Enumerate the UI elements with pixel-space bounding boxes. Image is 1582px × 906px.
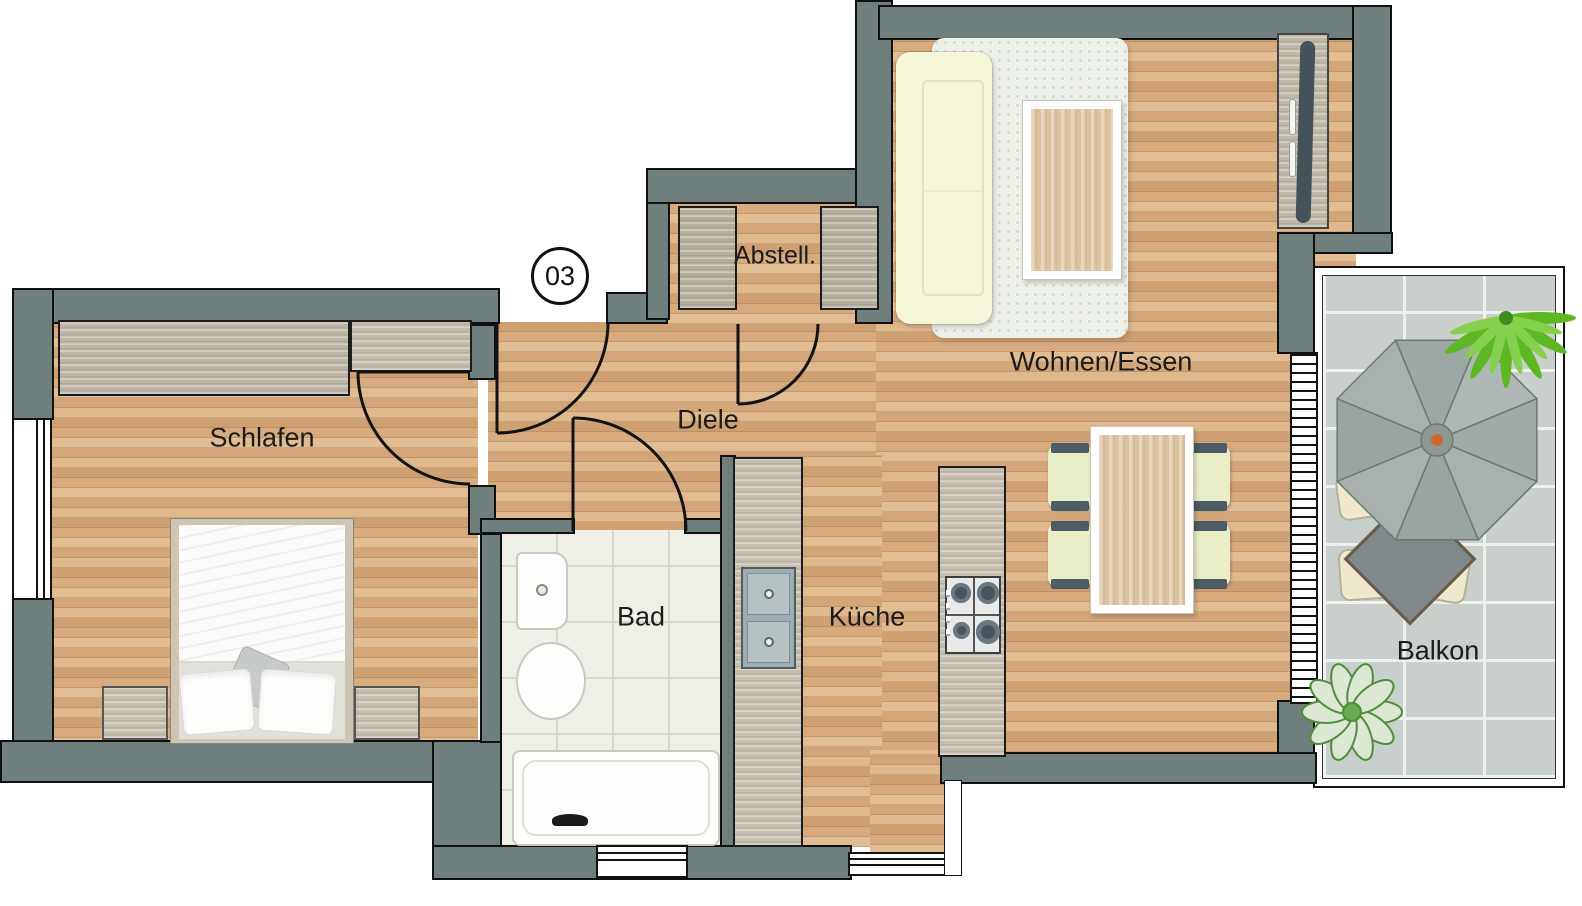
- chair-back: [1189, 443, 1227, 453]
- room-label-kueche: Küche: [829, 602, 906, 633]
- window-glass: [850, 858, 950, 866]
- cooktop-knobs: [946, 590, 950, 642]
- unit-number-badge: 03: [531, 247, 589, 305]
- dining-chair: [1048, 446, 1092, 508]
- wall-segment: [0, 740, 460, 783]
- bed-pillow: [257, 668, 337, 735]
- wall-segment: [480, 533, 502, 743]
- room-label-wohnen-essen: Wohnen/Essen: [1010, 347, 1193, 378]
- chair-back: [1051, 443, 1089, 453]
- bathtub-inner: [522, 760, 710, 836]
- room-label-diele: Diele: [677, 405, 739, 436]
- wall-segment: [646, 168, 858, 204]
- balcony: [1313, 266, 1565, 788]
- dining-chair: [1048, 524, 1092, 586]
- nightstand: [354, 686, 420, 740]
- kitchen-sink: [741, 567, 796, 669]
- coffee-table-top: [1031, 109, 1113, 271]
- chair-back: [1051, 501, 1089, 511]
- burner: [953, 622, 970, 639]
- window-glass: [598, 852, 686, 861]
- faucet: [764, 637, 774, 647]
- sink-basin: [747, 621, 790, 663]
- kitchen-island: [938, 466, 1006, 757]
- storage-cabinet: [820, 206, 879, 310]
- bed-pillow: [178, 668, 255, 736]
- bathroom-sink: [516, 552, 568, 630]
- wall-segment: [480, 518, 575, 534]
- bathtub: [512, 750, 720, 846]
- toilet: [516, 642, 586, 720]
- wardrobe: [350, 320, 472, 372]
- balcony-door-window: [1290, 352, 1318, 704]
- window: [12, 418, 52, 600]
- wall-segment: [12, 598, 54, 763]
- floor-plan: Schlafen Bad Diele Abstell. Küche Wohnen…: [0, 0, 1582, 906]
- cooktop: [945, 576, 1001, 654]
- burner: [951, 583, 971, 603]
- wall-segment: [12, 288, 54, 420]
- room-label-abstell: Abstell.: [734, 242, 816, 271]
- bed-duvet: [179, 525, 345, 663]
- balcony-chair: [1334, 470, 1386, 522]
- nightstand: [102, 686, 168, 740]
- window-jamb: [944, 780, 962, 876]
- wall-segment: [468, 324, 496, 380]
- window: [848, 852, 952, 876]
- wall-segment: [1352, 5, 1392, 245]
- sink-basin: [747, 573, 790, 615]
- burner: [977, 582, 999, 604]
- chair-back: [1189, 521, 1227, 531]
- faucet: [536, 584, 548, 596]
- tv-soundbar: [1289, 99, 1296, 135]
- kitchen-counter: [733, 457, 803, 847]
- wardrobe: [58, 320, 350, 396]
- chair-back: [1051, 521, 1089, 531]
- dining-table: [1090, 426, 1194, 614]
- chair-back: [1189, 501, 1227, 511]
- tv-sideboard: [1277, 33, 1329, 229]
- wall-segment: [1277, 232, 1315, 354]
- unit-number: 03: [545, 261, 575, 292]
- chair-back: [1189, 579, 1227, 589]
- faucet: [764, 589, 774, 599]
- bed: [170, 518, 354, 744]
- dining-table-top: [1099, 435, 1185, 605]
- room-label-bad: Bad: [617, 602, 665, 633]
- chair-back: [1051, 579, 1089, 589]
- wall-segment: [12, 288, 500, 324]
- window-glass: [36, 420, 45, 598]
- sofa: [896, 52, 992, 324]
- coffee-table: [1022, 100, 1122, 280]
- tv: [1296, 41, 1316, 223]
- burner: [976, 620, 1000, 644]
- bathtub-drain: [552, 814, 588, 826]
- room-label-schlafen: Schlafen: [209, 423, 314, 454]
- room-label-balkon: Balkon: [1397, 636, 1480, 667]
- sofa-seat: [922, 80, 984, 296]
- window: [596, 845, 688, 878]
- storage-cabinet: [678, 206, 737, 310]
- tv-soundbar: [1289, 141, 1296, 177]
